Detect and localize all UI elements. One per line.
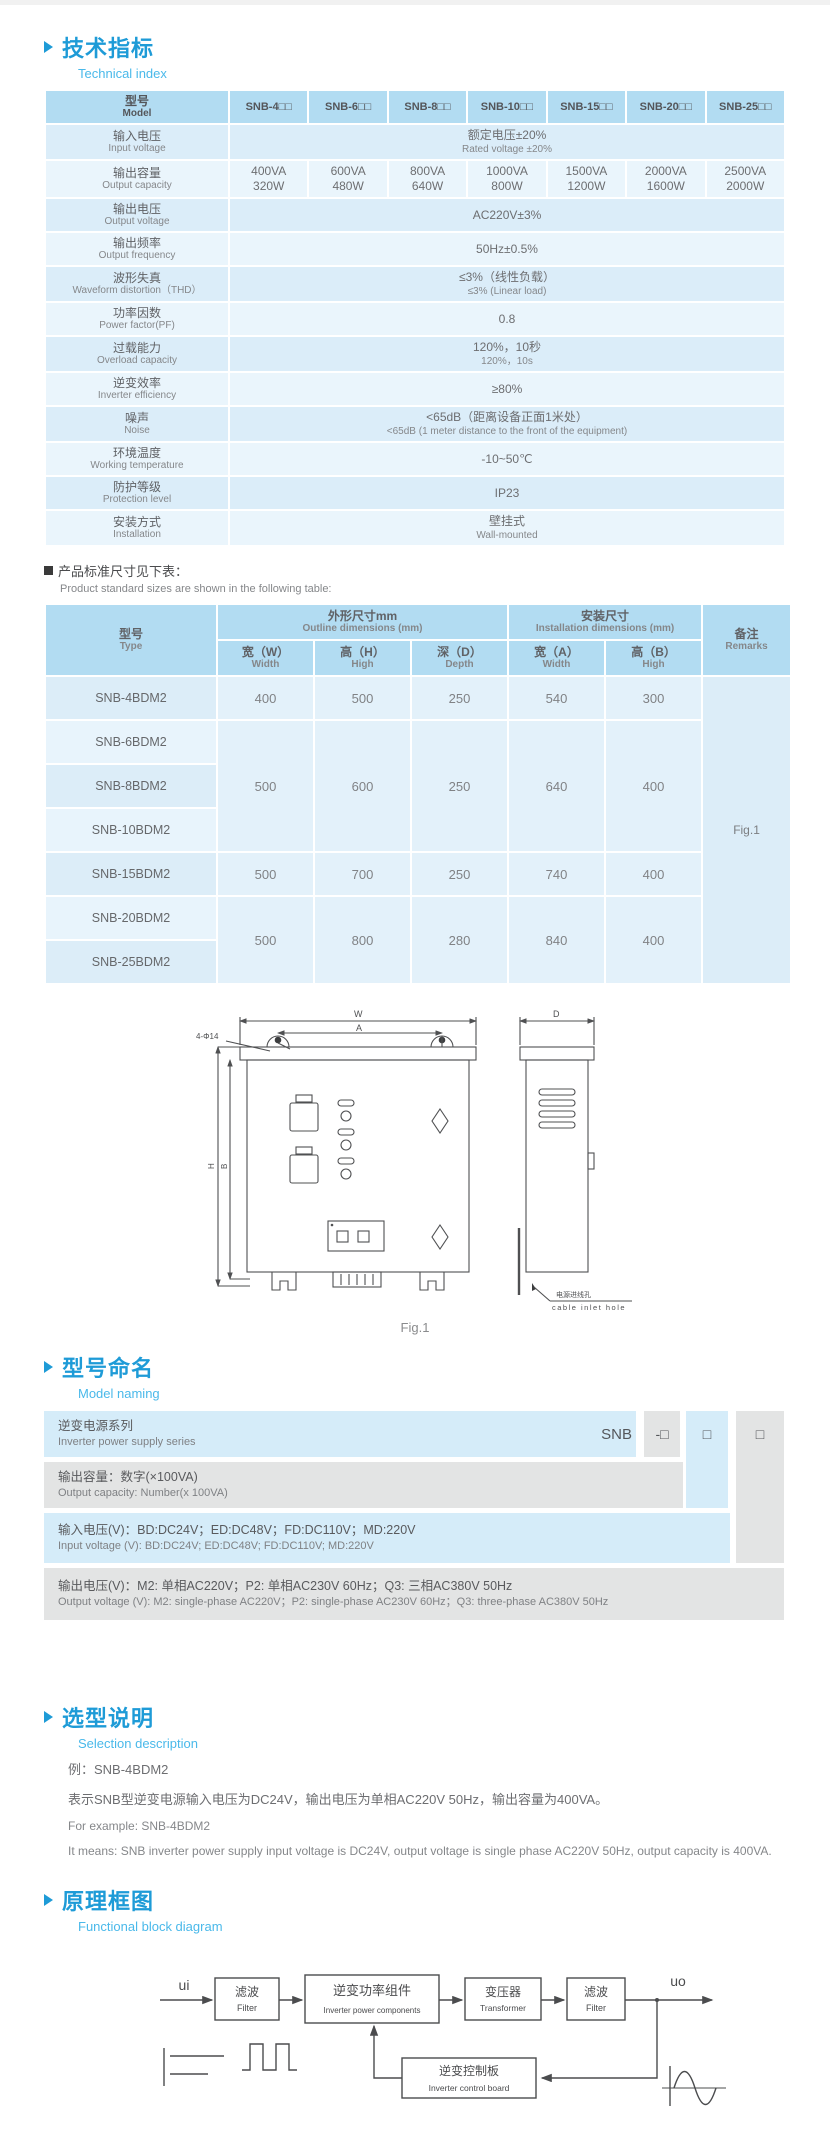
naming-row-capacity: 输出容量：数字(×100VA) Output capacity: Number(…: [44, 1462, 683, 1508]
dims-row-snb20: SNB-20BDM2 500 800 280 840 400: [46, 897, 790, 939]
row-value-zh: IP23: [232, 486, 782, 501]
spec-model-col: SNB-15□□: [548, 91, 625, 123]
spec-model-col: SNB-8□□: [389, 91, 466, 123]
code-box-output-voltage: □: [736, 1411, 784, 1563]
dim-b: 400: [606, 721, 701, 851]
row-label-en: Power factor(PF): [48, 320, 226, 332]
row-label-en: Input voltage: [48, 143, 226, 155]
row-label-zh: 防护等级: [48, 480, 226, 494]
size-note: 产品标准尺寸见下表： Product standard sizes are sh…: [44, 561, 830, 595]
dim-d: 250: [412, 853, 507, 895]
dim-d: 250: [412, 721, 507, 851]
block-filter1-zh: 滤波: [235, 1985, 259, 1999]
naming-row-zh: 输出电压(V)：M2: 单相AC220V；P2: 单相AC230V 60Hz；Q…: [58, 1578, 784, 1595]
dims-remark-zh: 备注: [705, 627, 788, 641]
spec-row-waveform-distortion: 波形失真Waveform distortion（THD） ≤3%（线性负载）≤3…: [46, 267, 784, 301]
capacity-w: 320W: [232, 179, 305, 194]
row-label-en: Output capacity: [48, 180, 226, 192]
naming-row-zh: 逆变电源系列: [58, 1418, 636, 1435]
output-signal-label: uo: [670, 1973, 686, 1989]
remarks-cell: Fig.1: [703, 677, 790, 983]
row-value-zh: ≥80%: [232, 382, 782, 397]
figure-caption: Fig.1: [190, 1320, 640, 1335]
dims-col-width-a: 宽（A）Width: [509, 641, 604, 675]
dim-a: 740: [509, 853, 604, 895]
row-label-zh: 安装方式: [48, 515, 226, 529]
row-value-en: ≤3% (Linear load): [232, 285, 782, 298]
holes-label: 4-Φ14: [196, 1032, 219, 1041]
section-arrow-icon: [44, 1711, 53, 1723]
section-title-zh: 选型说明: [62, 1701, 154, 1733]
selection-desc-en: It means: SNB inverter power supply inpu…: [68, 1844, 830, 1858]
dims-header-remarks: 备注 Remarks: [703, 605, 790, 675]
row-label-zh: 波形失真: [48, 271, 226, 285]
row-label-zh: 输出容量: [48, 166, 226, 180]
row-value-zh: 壁挂式: [232, 514, 782, 529]
spec-row-installation: 安装方式Installation 壁挂式Wall-mounted: [46, 511, 784, 545]
block-control-board-zh: 逆变控制板: [439, 2063, 499, 2078]
row-value-en: Rated voltage ±20%: [232, 143, 782, 156]
dim-w: 400: [218, 677, 313, 719]
block-power-components-en: Inverter power components: [324, 2006, 421, 2015]
section-arrow-icon: [44, 1894, 53, 1906]
row-label-zh: 过载能力: [48, 341, 226, 355]
model-name-cell: SNB-6BDM2: [46, 721, 216, 763]
row-value-en: 120%，10s: [232, 355, 782, 368]
naming-row-series: 逆变电源系列 Inverter power supply series: [44, 1411, 636, 1457]
row-value-zh: -10~50℃: [232, 452, 782, 467]
dims-col-width-w: 宽（W）Width: [218, 641, 313, 675]
naming-row-en: Output voltage (V): M2: single-phase AC2…: [58, 1595, 784, 1610]
dim-b: 400: [606, 897, 701, 983]
row-label-en: Waveform distortion（THD）: [48, 285, 226, 297]
dims-row-snb15: SNB-15BDM2 500 700 250 740 400: [46, 853, 790, 895]
row-label-en: Protection level: [48, 494, 226, 506]
code-box-capacity: -□: [644, 1411, 680, 1457]
dims-col-depth-d: 深（D）Depth: [412, 641, 507, 675]
spec-header-row: 型号 Model SNB-4□□ SNB-6□□ SNB-8□□ SNB-10□…: [46, 91, 784, 123]
section-title-en: Functional block diagram: [78, 1919, 830, 1934]
dim-label-h: H: [207, 1163, 216, 1169]
selection-example-zh: 例：SNB-4BDM2: [68, 1759, 830, 1778]
row-value-zh: <65dB（距离设备正面1米处）: [232, 410, 782, 425]
dim-h: 800: [315, 897, 410, 983]
spec-row-protection-level: 防护等级Protection level IP23: [46, 477, 784, 509]
spec-row-output-capacity: 输出容量Output capacity 400VA320W 600VA480W …: [46, 161, 784, 197]
spec-model-col: SNB-6□□: [309, 91, 386, 123]
spec-model-col: SNB-4□□: [230, 91, 307, 123]
section-model-naming: 型号命名 Model naming: [44, 1351, 830, 1401]
capacity-w: 640W: [391, 179, 464, 194]
selection-example-en: For example: SNB-4BDM2: [68, 1819, 830, 1833]
capacity-va: 600VA: [311, 164, 384, 179]
dimensions-table: 型号 Type 外形尺寸mm Outline dimensions (mm) 安…: [44, 603, 792, 985]
section-title-zh: 技术指标: [62, 31, 154, 63]
block-transformer-zh: 变压器: [485, 1984, 521, 1999]
naming-row-zh: 输入电压(V)：BD:DC24V；ED:DC48V；FD:DC110V；MD:2…: [58, 1522, 730, 1539]
dim-label-a: A: [356, 1023, 362, 1033]
catalog-page: 技术指标 Technical index 型号 Model SNB-4□□ SN…: [0, 5, 830, 2148]
naming-row-output-voltage: 输出电压(V)：M2: 单相AC220V；P2: 单相AC230V 60Hz；Q…: [44, 1568, 784, 1620]
spec-table: 型号 Model SNB-4□□ SNB-6□□ SNB-8□□ SNB-10□…: [44, 89, 786, 547]
square-bullet-icon: [44, 566, 53, 575]
dims-remark-en: Remarks: [705, 641, 788, 653]
naming-row-en: Output capacity: Number(x 100VA): [58, 1486, 683, 1501]
section-title-row: 技术指标: [44, 31, 830, 63]
cabinet-drawing: W A D 4-Φ14 H B 电源进线孔 cable inlet hole: [190, 1003, 640, 1313]
section-selection-description: 选型说明 Selection description: [44, 1701, 830, 1751]
row-value-zh: 50Hz±0.5%: [232, 242, 782, 257]
spec-model-col: SNB-10□□: [468, 91, 545, 123]
model-name-cell: SNB-8BDM2: [46, 765, 216, 807]
dims-type-en: Type: [48, 641, 214, 653]
row-value-en: Wall-mounted: [232, 529, 782, 542]
selection-desc-zh: 表示SNB型逆变电源输入电压为DC24V，输出电压为单相AC220V 50Hz，…: [68, 1789, 830, 1808]
block-diagram-svg: ui uo 滤波 Filter 逆变功率组件 Inverter power co…: [112, 1948, 732, 2123]
section-title-en: Selection description: [78, 1736, 830, 1751]
dim-label-d: D: [553, 1009, 560, 1019]
dims-row-snb4: SNB-4BDM2 400 500 250 540 300 Fig.1: [46, 677, 790, 719]
row-label-zh: 噪声: [48, 411, 226, 425]
dim-a: 640: [509, 721, 604, 851]
naming-row-en: Input voltage (V): BD:DC24V; ED:DC48V; F…: [58, 1539, 730, 1554]
input-signal-label: ui: [179, 1977, 190, 1993]
size-note-en: Product standard sizes are shown in the …: [60, 583, 830, 595]
capacity-w: 1200W: [550, 179, 623, 194]
capacity-va: 2000VA: [629, 164, 702, 179]
row-value-zh: 0.8: [232, 312, 782, 327]
dim-h: 500: [315, 677, 410, 719]
spec-header-model-en: Model: [48, 108, 226, 120]
naming-row-input-voltage: 输入电压(V)：BD:DC24V；ED:DC48V；FD:DC110V；MD:2…: [44, 1513, 730, 1563]
block-power-components-zh: 逆变功率组件: [333, 1983, 411, 1998]
row-label-zh: 功率因数: [48, 306, 226, 320]
spec-row-power-factor: 功率因数Power factor(PF) 0.8: [46, 303, 784, 335]
capacity-w: 1600W: [629, 179, 702, 194]
row-value-zh: 120%，10秒: [232, 340, 782, 355]
capacity-va: 1500VA: [550, 164, 623, 179]
capacity-va: 2500VA: [709, 164, 782, 179]
row-label-en: Installation: [48, 529, 226, 541]
dim-d: 280: [412, 897, 507, 983]
dims-header-outline: 外形尺寸mm Outline dimensions (mm): [218, 605, 507, 639]
selection-body: 例：SNB-4BDM2 表示SNB型逆变电源输入电压为DC24V，输出电压为单相…: [68, 1759, 830, 1858]
dim-label-b: B: [220, 1164, 229, 1169]
section-title-en: Model naming: [78, 1386, 830, 1401]
row-label-zh: 输入电压: [48, 129, 226, 143]
dims-header-type: 型号 Type: [46, 605, 216, 675]
spec-row-overload-capacity: 过载能力Overload capacity 120%，10秒120%，10s: [46, 337, 784, 371]
dims-col-high-b: 高（B）High: [606, 641, 701, 675]
dims-outline-zh: 外形尺寸mm: [220, 609, 505, 623]
spec-row-output-frequency: 输出频率Output frequency 50Hz±0.5%: [46, 233, 784, 265]
section-title-zh: 型号命名: [62, 1351, 154, 1383]
row-value-zh: ≤3%（线性负载）: [232, 270, 782, 285]
dimension-figure: W A D 4-Φ14 H B 电源进线孔 cable inlet hole F…: [190, 1003, 640, 1335]
spec-row-output-voltage: 输出电压Output voltage AC220V±3%: [46, 199, 784, 231]
block-transformer-en: Transformer: [480, 2003, 526, 2013]
dims-outline-en: Outline dimensions (mm): [220, 623, 505, 635]
cable-inlet-label-zh: 电源进线孔: [556, 1290, 591, 1299]
row-label-zh: 输出电压: [48, 202, 226, 216]
dims-header-install: 安装尺寸 Installation dimensions (mm): [509, 605, 701, 639]
capacity-w: 480W: [311, 179, 384, 194]
capacity-va: 800VA: [391, 164, 464, 179]
section-title-en: Technical index: [78, 66, 830, 81]
spec-row-inverter-efficiency: 逆变效率Inverter efficiency ≥80%: [46, 373, 784, 405]
row-label-zh: 逆变效率: [48, 376, 226, 390]
dim-b: 300: [606, 677, 701, 719]
row-label-en: Inverter efficiency: [48, 390, 226, 402]
section-technical-index: 技术指标 Technical index: [44, 31, 830, 81]
row-label-en: Output voltage: [48, 216, 226, 228]
code-prefix: SNB: [572, 1411, 632, 1457]
spec-row-noise: 噪声Noise <65dB（距离设备正面1米处）<65dB (1 meter d…: [46, 407, 784, 441]
naming-row-en: Inverter power supply series: [58, 1435, 636, 1450]
dim-b: 400: [606, 853, 701, 895]
model-name-cell: SNB-15BDM2: [46, 853, 216, 895]
dim-w: 500: [218, 853, 313, 895]
dim-a: 540: [509, 677, 604, 719]
dims-row-snb6: SNB-6BDM2 500 600 250 640 400: [46, 721, 790, 763]
row-label-zh: 输出频率: [48, 236, 226, 250]
dim-a: 840: [509, 897, 604, 983]
dim-h: 700: [315, 853, 410, 895]
code-box-input-voltage: □: [686, 1411, 728, 1508]
dims-install-en: Installation dimensions (mm): [511, 623, 699, 635]
capacity-va: 400VA: [232, 164, 305, 179]
block-filter2-zh: 滤波: [584, 1985, 608, 1999]
section-arrow-icon: [44, 1361, 53, 1373]
capacity-w: 800W: [470, 179, 543, 194]
block-filter2-en: Filter: [586, 2003, 606, 2013]
model-name-cell: SNB-10BDM2: [46, 809, 216, 851]
spec-header-model-zh: 型号: [48, 94, 226, 108]
row-label-zh: 环境温度: [48, 446, 226, 460]
section-arrow-icon: [44, 41, 53, 53]
dims-type-zh: 型号: [48, 627, 214, 641]
row-value-en: <65dB (1 meter distance to the front of …: [232, 425, 782, 438]
dim-w: 500: [218, 897, 313, 983]
dims-install-zh: 安装尺寸: [511, 609, 699, 623]
spec-model-col: SNB-25□□: [707, 91, 784, 123]
dim-h: 600: [315, 721, 410, 851]
section-block-diagram: 原理框图 Functional block diagram: [44, 1884, 830, 1934]
dim-w: 500: [218, 721, 313, 851]
functional-block-diagram: ui uo 滤波 Filter 逆变功率组件 Inverter power co…: [112, 1948, 830, 2128]
row-value-zh: AC220V±3%: [232, 208, 782, 223]
row-label-en: Output frequency: [48, 250, 226, 262]
row-label-en: Overload capacity: [48, 355, 226, 367]
dims-header-row-1: 型号 Type 外形尺寸mm Outline dimensions (mm) 安…: [46, 605, 790, 639]
naming-row-zh: 输出容量：数字(×100VA): [58, 1469, 683, 1486]
model-name-cell: SNB-4BDM2: [46, 677, 216, 719]
block-control-board-en: Inverter control board: [429, 2083, 510, 2093]
section-title-zh: 原理框图: [62, 1884, 154, 1916]
spec-row-input-voltage: 输入电压Input voltage 额定电压±20%Rated voltage …: [46, 125, 784, 159]
dims-col-high-h: 高（H）High: [315, 641, 410, 675]
dim-label-w: W: [354, 1009, 363, 1019]
spec-model-col: SNB-20□□: [627, 91, 704, 123]
model-name-cell: SNB-20BDM2: [46, 897, 216, 939]
cable-inlet-label-en: cable inlet hole: [552, 1303, 626, 1312]
model-naming-ladder: 逆变电源系列 Inverter power supply series 输出容量…: [44, 1411, 786, 1671]
capacity-va: 1000VA: [470, 164, 543, 179]
capacity-w: 2000W: [709, 179, 782, 194]
row-label-en: Working temperature: [48, 460, 226, 472]
spec-header-model: 型号 Model: [46, 91, 228, 123]
row-value-zh: 额定电压±20%: [232, 128, 782, 143]
size-note-zh: 产品标准尺寸见下表：: [58, 561, 188, 580]
model-name-cell: SNB-25BDM2: [46, 941, 216, 983]
row-label-en: Noise: [48, 425, 226, 437]
block-filter1-en: Filter: [237, 2003, 257, 2013]
spec-row-working-temperature: 环境温度Working temperature -10~50℃: [46, 443, 784, 475]
dim-d: 250: [412, 677, 507, 719]
